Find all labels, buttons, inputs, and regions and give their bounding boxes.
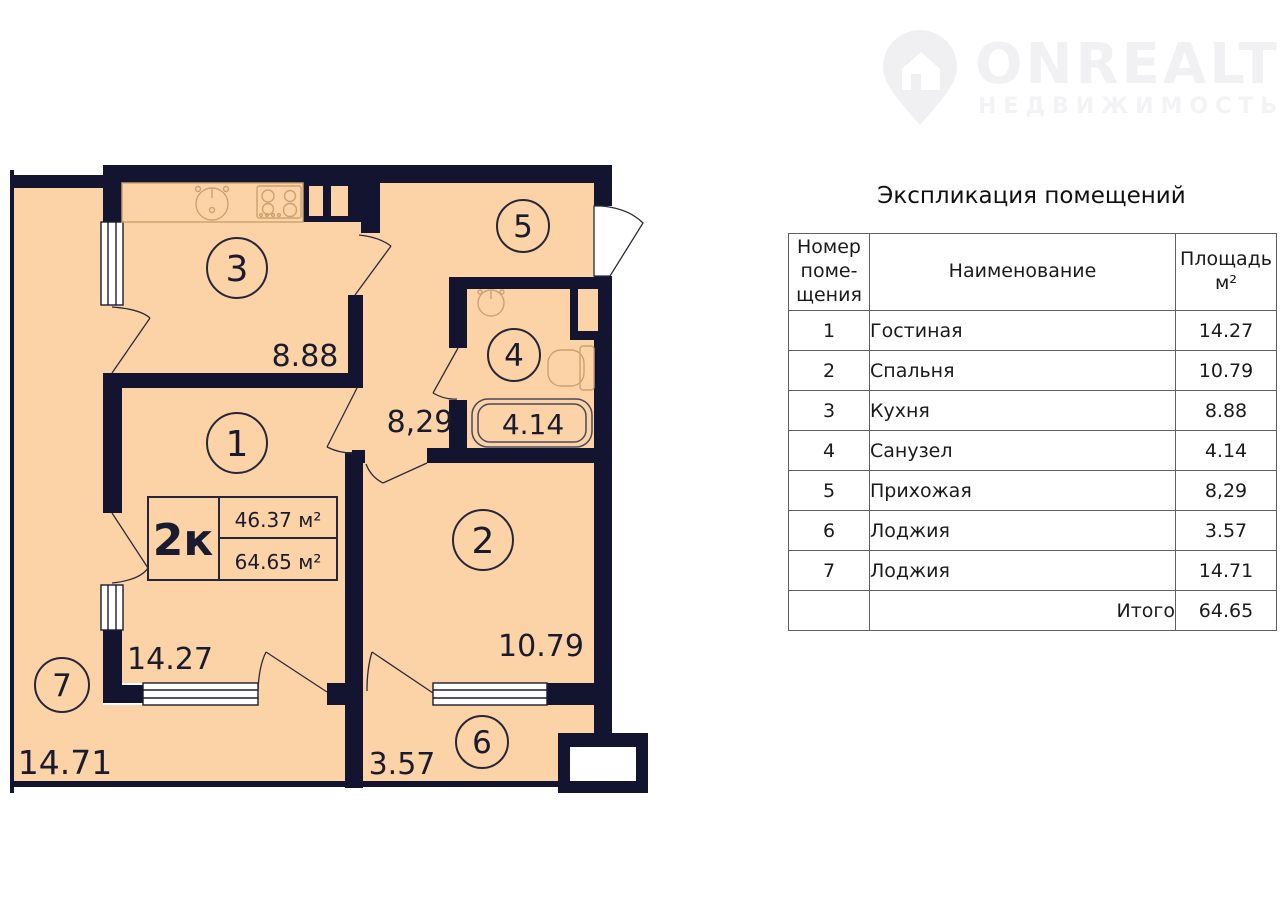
room-6-number: 6: [472, 725, 492, 761]
entrance-door: [594, 206, 643, 276]
apartment-type-label: 2к: [153, 515, 214, 566]
hall-area-label: 8,29: [387, 405, 454, 440]
cell-number: 1: [789, 311, 870, 351]
wall-loggia-top: [13, 175, 103, 188]
wall-kitchen-bottom: [103, 373, 363, 388]
living-area-label: 14.27: [127, 642, 213, 677]
explication-table: Номер поме- щения Наименование Площадь м…: [788, 233, 1277, 631]
living-area-value: 46.37 м²: [235, 508, 322, 532]
niche-slot: [578, 289, 598, 331]
cell-number: 3: [789, 391, 870, 431]
window-living-loggia: [101, 585, 123, 630]
header-area: Площадь м²: [1176, 234, 1277, 311]
cell-number: 4: [789, 431, 870, 471]
wall-right: [594, 276, 612, 748]
shaft-box-inner: [570, 747, 636, 781]
cell-name: Прихожая: [870, 471, 1176, 511]
cell-area: 14.27: [1176, 311, 1277, 351]
room-3-number: 3: [226, 249, 249, 290]
room-4-number: 4: [504, 338, 524, 374]
cell-name: Спальня: [870, 351, 1176, 391]
total-area-value: 64.65 м²: [235, 550, 322, 574]
floor-plan: 3 1 2 5 4 6 7 8.88 8,29 4.14 14.27 10.79…: [0, 0, 660, 910]
cell-empty: [789, 591, 870, 631]
total-label: Итого: [870, 591, 1176, 631]
logo-tagline-text: НЕДВИЖИМОСТЬ: [978, 94, 1280, 119]
window-kitchen-loggia: [101, 222, 123, 305]
cell-name: Гостиная: [870, 311, 1176, 351]
table-title: Экспликация помещений: [788, 183, 1275, 209]
floorplan-page: { "logo": { "brand": "ONREALT", "tagline…: [0, 0, 1280, 910]
table-row: 4 Санузел 4.14: [789, 431, 1277, 471]
room-1-number: 1: [226, 424, 249, 465]
cell-number: 2: [789, 351, 870, 391]
room-7-number: 7: [52, 668, 72, 704]
cell-area: 10.79: [1176, 351, 1277, 391]
wall-kitchen-hall: [348, 295, 363, 387]
cell-name: Санузел: [870, 431, 1176, 471]
cell-area: 14.71: [1176, 551, 1277, 591]
table-row: 2 Спальня 10.79: [789, 351, 1277, 391]
vent-slot-1: [309, 186, 323, 216]
bedroom-area-label: 10.79: [498, 629, 584, 664]
cell-name: Лоджия: [870, 551, 1176, 591]
room-2-number: 2: [472, 521, 495, 562]
total-value: 64.65: [1176, 591, 1277, 631]
bathroom-area-label: 4.14: [502, 408, 564, 441]
cell-area: 3.57: [1176, 511, 1277, 551]
cell-name: Кухня: [870, 391, 1176, 431]
wall-room-divider: [345, 452, 363, 788]
table-total-row: Итого 64.65: [789, 591, 1277, 631]
wall-right-above-entrance: [594, 183, 612, 206]
table-row: 7 Лоджия 14.71: [789, 551, 1277, 591]
table-row: 5 Прихожая 8,29: [789, 471, 1277, 511]
kitchen-area-label: 8.88: [272, 339, 339, 374]
loggia7-area-label: 14.71: [18, 743, 112, 782]
window-living-bottom: [143, 683, 258, 705]
cell-number: 6: [789, 511, 870, 551]
header-number: Номер поме- щения: [789, 234, 870, 311]
logo-pin-icon: [878, 30, 962, 126]
cell-area: 8.88: [1176, 391, 1277, 431]
cell-number: 7: [789, 551, 870, 591]
table-row: 6 Лоджия 3.57: [789, 511, 1277, 551]
onrealt-logo: ONREALT НЕДВИЖИМОСТЬ: [878, 28, 1258, 126]
table-header-row: Номер поме- щения Наименование Площадь м…: [789, 234, 1277, 311]
table-row: 3 Кухня 8.88: [789, 391, 1277, 431]
wall-outer-left: [10, 170, 14, 793]
cell-number: 5: [789, 471, 870, 511]
wall-bathroom-bottom: [427, 448, 612, 463]
cell-name: Лоджия: [870, 511, 1176, 551]
table-row: 1 Гостиная 14.27: [789, 311, 1277, 351]
loggia6-area-label: 3.57: [369, 747, 436, 782]
vent-slot-2: [331, 186, 348, 216]
logo-brand-text: ONREALT: [975, 32, 1280, 97]
room-5-number: 5: [513, 209, 533, 245]
window-bedroom-bottom: [433, 683, 547, 705]
cell-area: 4.14: [1176, 431, 1277, 471]
header-name: Наименование: [870, 234, 1176, 311]
cell-area: 8,29: [1176, 471, 1277, 511]
